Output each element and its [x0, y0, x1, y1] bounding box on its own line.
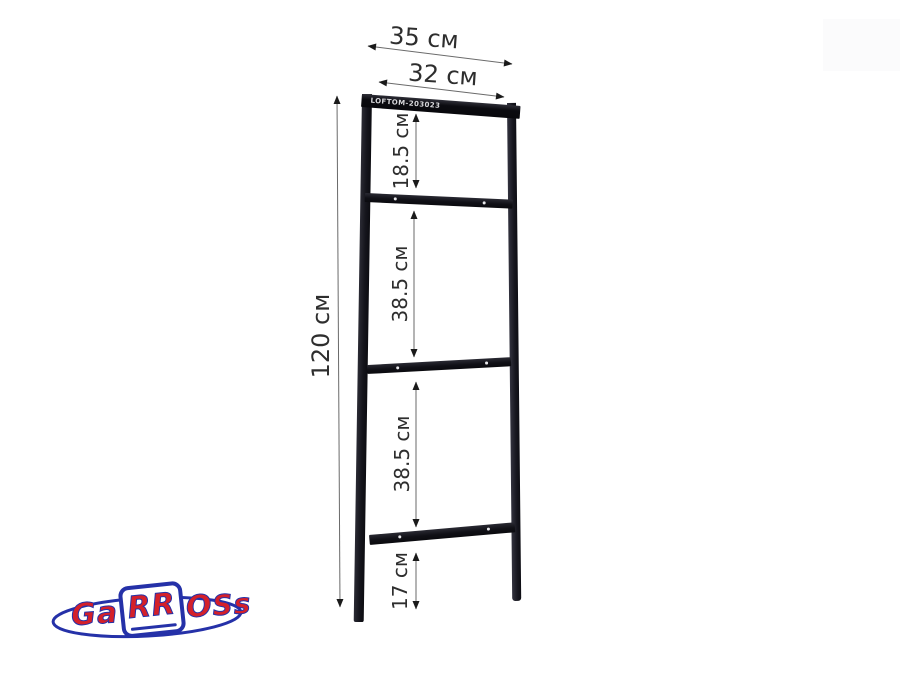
product-dimension-diagram: LOFTOM-203023	[0, 0, 900, 675]
dim-arrow-total-height	[337, 96, 340, 607]
dim-label-section-4: 17 см	[390, 552, 410, 610]
dim-label-inner-width: 32 см	[408, 61, 479, 90]
logo-part-rr: RR	[126, 586, 178, 626]
logo-part-ss: Ss	[211, 586, 252, 622]
logo-part-o: O	[185, 588, 214, 625]
dim-label-outer-width: 35 см	[389, 24, 460, 53]
logo-part-ga: Ga	[70, 595, 119, 633]
garross-logo: Ga RR O Ss	[50, 576, 250, 648]
dim-label-section-3: 38.5 см	[392, 416, 412, 493]
dim-label-total-height: 120 см	[309, 294, 333, 379]
logo-rr-box: RR	[117, 580, 186, 638]
dim-label-section-2: 38.5 см	[390, 246, 410, 323]
dimension-arrows	[0, 0, 900, 675]
dim-label-section-1: 18.5 см	[391, 113, 411, 190]
